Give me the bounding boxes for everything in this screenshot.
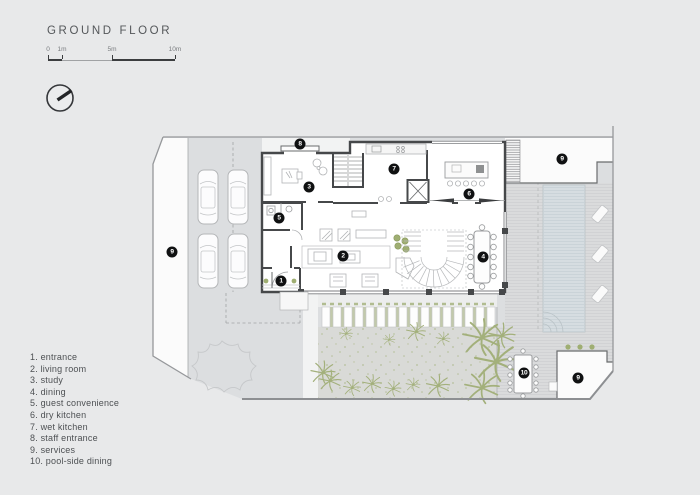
stepping-stones (322, 304, 495, 327)
legend-item-6: 6. dry kitchen (30, 410, 119, 422)
floor-plan-page: GROUND FLOOR 01m5m10m (0, 0, 700, 495)
legend-list: 1. entrance2. living room3. study4. dini… (30, 352, 119, 468)
legend-item-5: 5. guest convenience (30, 398, 119, 410)
car (228, 170, 248, 224)
car (198, 234, 218, 288)
legend-item-4: 4. dining (30, 387, 119, 399)
legend-item-8: 8. staff entrance (30, 433, 119, 445)
legend-item-3: 3. study (30, 375, 119, 387)
services-bottom-right-area (549, 344, 613, 399)
legend-item-1: 1. entrance (30, 352, 119, 364)
legend-item-7: 7. wet kitchen (30, 422, 119, 434)
legend-item-9: 9. services (30, 445, 119, 457)
services-left-area (153, 138, 188, 377)
elevator (408, 180, 429, 202)
legend-item-2: 2. living room (30, 364, 119, 376)
services-top-right-area (505, 138, 613, 183)
legend-item-10: 10. pool-side dining (30, 456, 119, 468)
car (198, 170, 218, 224)
car (228, 234, 248, 288)
